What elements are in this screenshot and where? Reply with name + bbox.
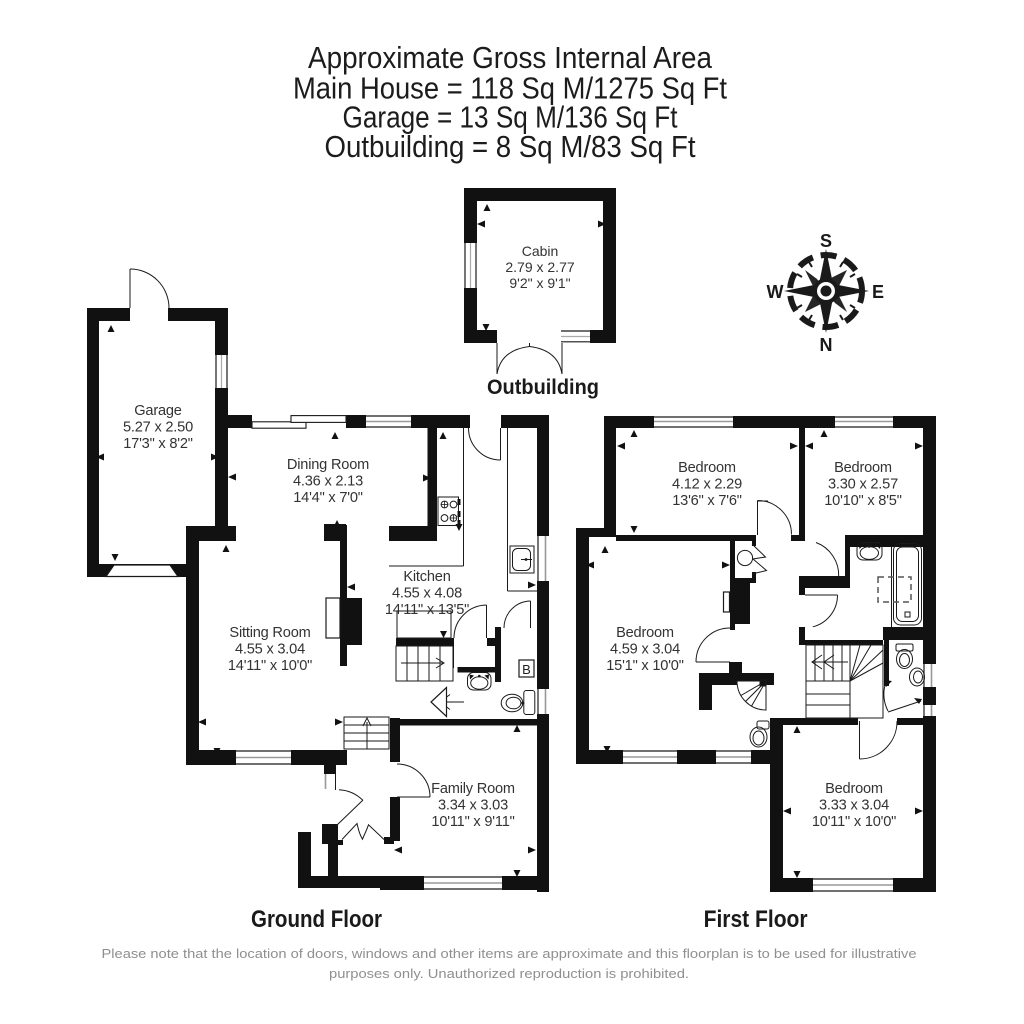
svg-text:9'2" x 9'1": 9'2" x 9'1" xyxy=(509,275,570,291)
svg-text:Bedroom: Bedroom xyxy=(834,460,892,476)
svg-text:3.30 x 2.57: 3.30 x 2.57 xyxy=(828,477,898,493)
svg-text:W: W xyxy=(767,282,784,302)
svg-text:3.34 x 3.03: 3.34 x 3.03 xyxy=(438,798,508,814)
svg-text:Bedroom: Bedroom xyxy=(678,460,736,476)
svg-text:Ground Floor: Ground Floor xyxy=(251,906,382,933)
svg-text:B: B xyxy=(522,662,531,677)
svg-text:Outbuilding = 8 Sq M/83 Sq Ft: Outbuilding = 8 Sq M/83 Sq Ft xyxy=(325,129,696,164)
svg-text:14'11" x 10'0": 14'11" x 10'0" xyxy=(228,658,312,674)
svg-text:purposes only. Unauthorized re: purposes only. Unauthorized reproduction… xyxy=(329,966,689,981)
svg-text:E: E xyxy=(872,282,884,302)
svg-text:Sitting Room: Sitting Room xyxy=(229,625,310,641)
svg-text:Bedroom: Bedroom xyxy=(616,625,674,641)
svg-text:4.55 x 4.08: 4.55 x 4.08 xyxy=(392,586,462,602)
svg-text:Family Room: Family Room xyxy=(431,781,515,797)
svg-text:2.79 x 2.77: 2.79 x 2.77 xyxy=(505,259,574,275)
svg-text:15'1" x 10'0": 15'1" x 10'0" xyxy=(606,658,683,674)
svg-text:17'3" x 8'2": 17'3" x 8'2" xyxy=(123,436,193,452)
svg-text:4.59 x 3.04: 4.59 x 3.04 xyxy=(610,642,680,658)
svg-text:10'11" x 10'0": 10'11" x 10'0" xyxy=(812,814,896,830)
svg-text:13'6" x 7'6": 13'6" x 7'6" xyxy=(672,493,742,509)
svg-text:Bedroom: Bedroom xyxy=(825,781,883,797)
svg-text:Cabin: Cabin xyxy=(522,243,559,259)
svg-text:4.12 x 2.29: 4.12 x 2.29 xyxy=(672,477,742,493)
svg-text:4.55 x 3.04: 4.55 x 3.04 xyxy=(235,642,305,658)
svg-text:N: N xyxy=(820,335,833,355)
svg-text:10'10" x 8'5": 10'10" x 8'5" xyxy=(824,493,901,509)
svg-text:Garage: Garage xyxy=(134,403,182,419)
svg-text:Dining Room: Dining Room xyxy=(287,457,369,473)
svg-text:5.27 x 2.50: 5.27 x 2.50 xyxy=(123,420,193,436)
svg-text:3.33 x 3.04: 3.33 x 3.04 xyxy=(819,798,889,814)
svg-text:10'11" x 9'11": 10'11" x 9'11" xyxy=(431,814,514,830)
svg-text:14'4" x 7'0": 14'4" x 7'0" xyxy=(293,490,363,506)
svg-text:Kitchen: Kitchen xyxy=(403,569,450,585)
svg-text:First Floor: First Floor xyxy=(704,906,808,933)
svg-text:4.36 x 2.13: 4.36 x 2.13 xyxy=(293,474,363,490)
svg-text:Outbuilding: Outbuilding xyxy=(487,375,599,399)
svg-text:14'11" x 13'5": 14'11" x 13'5" xyxy=(385,602,469,618)
svg-text:Please note that the location: Please note that the location of doors, … xyxy=(102,946,917,961)
svg-text:S: S xyxy=(820,231,832,251)
